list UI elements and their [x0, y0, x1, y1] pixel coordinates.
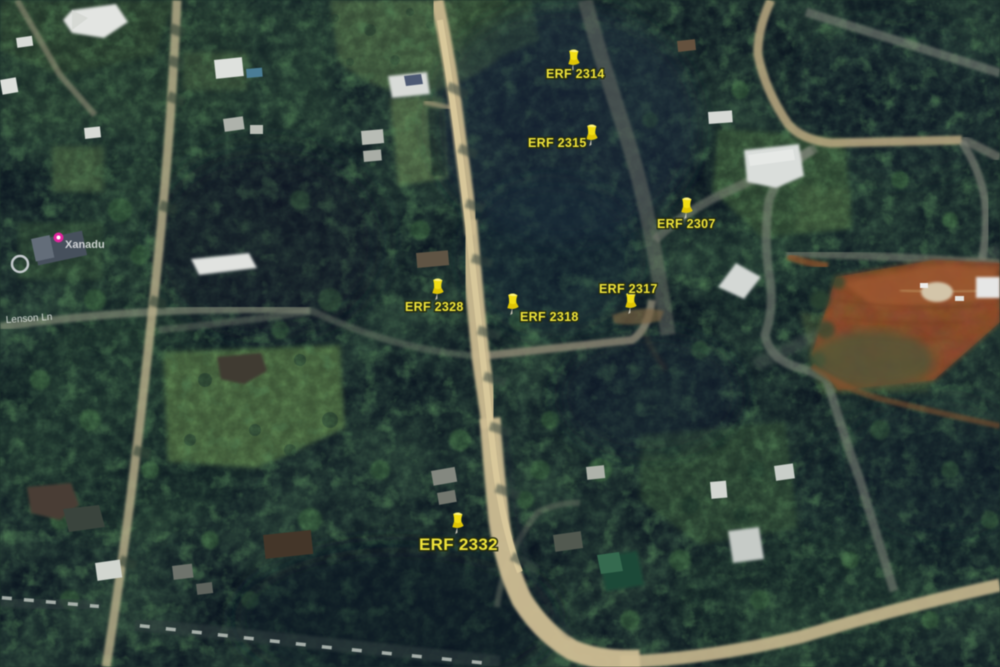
svg-text:ERF 2317: ERF 2317 [599, 282, 658, 296]
svg-text:ERF 2315: ERF 2315 [528, 136, 587, 150]
svg-text:ERF 2314: ERF 2314 [546, 67, 605, 81]
svg-text:ERF 2328: ERF 2328 [405, 300, 464, 314]
svg-text:ERF 2307: ERF 2307 [657, 217, 716, 231]
svg-text:ERF 2318: ERF 2318 [520, 310, 579, 324]
svg-text:ERF 2332: ERF 2332 [419, 535, 498, 554]
svg-text:Xanadu: Xanadu [65, 239, 105, 251]
